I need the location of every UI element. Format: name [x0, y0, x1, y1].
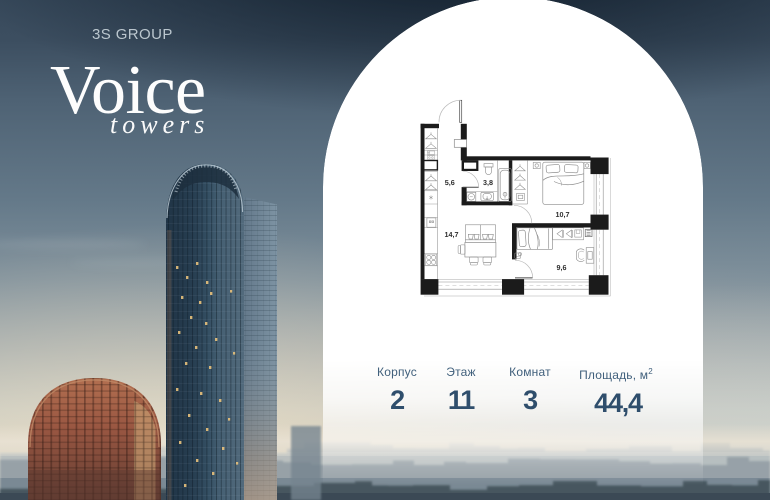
svg-text:5,6: 5,6	[445, 178, 455, 187]
svg-text:14,7: 14,7	[445, 230, 459, 239]
svg-text:10,7: 10,7	[556, 210, 570, 219]
svg-text:9,6: 9,6	[557, 263, 567, 272]
svg-text:3,8: 3,8	[483, 178, 493, 187]
